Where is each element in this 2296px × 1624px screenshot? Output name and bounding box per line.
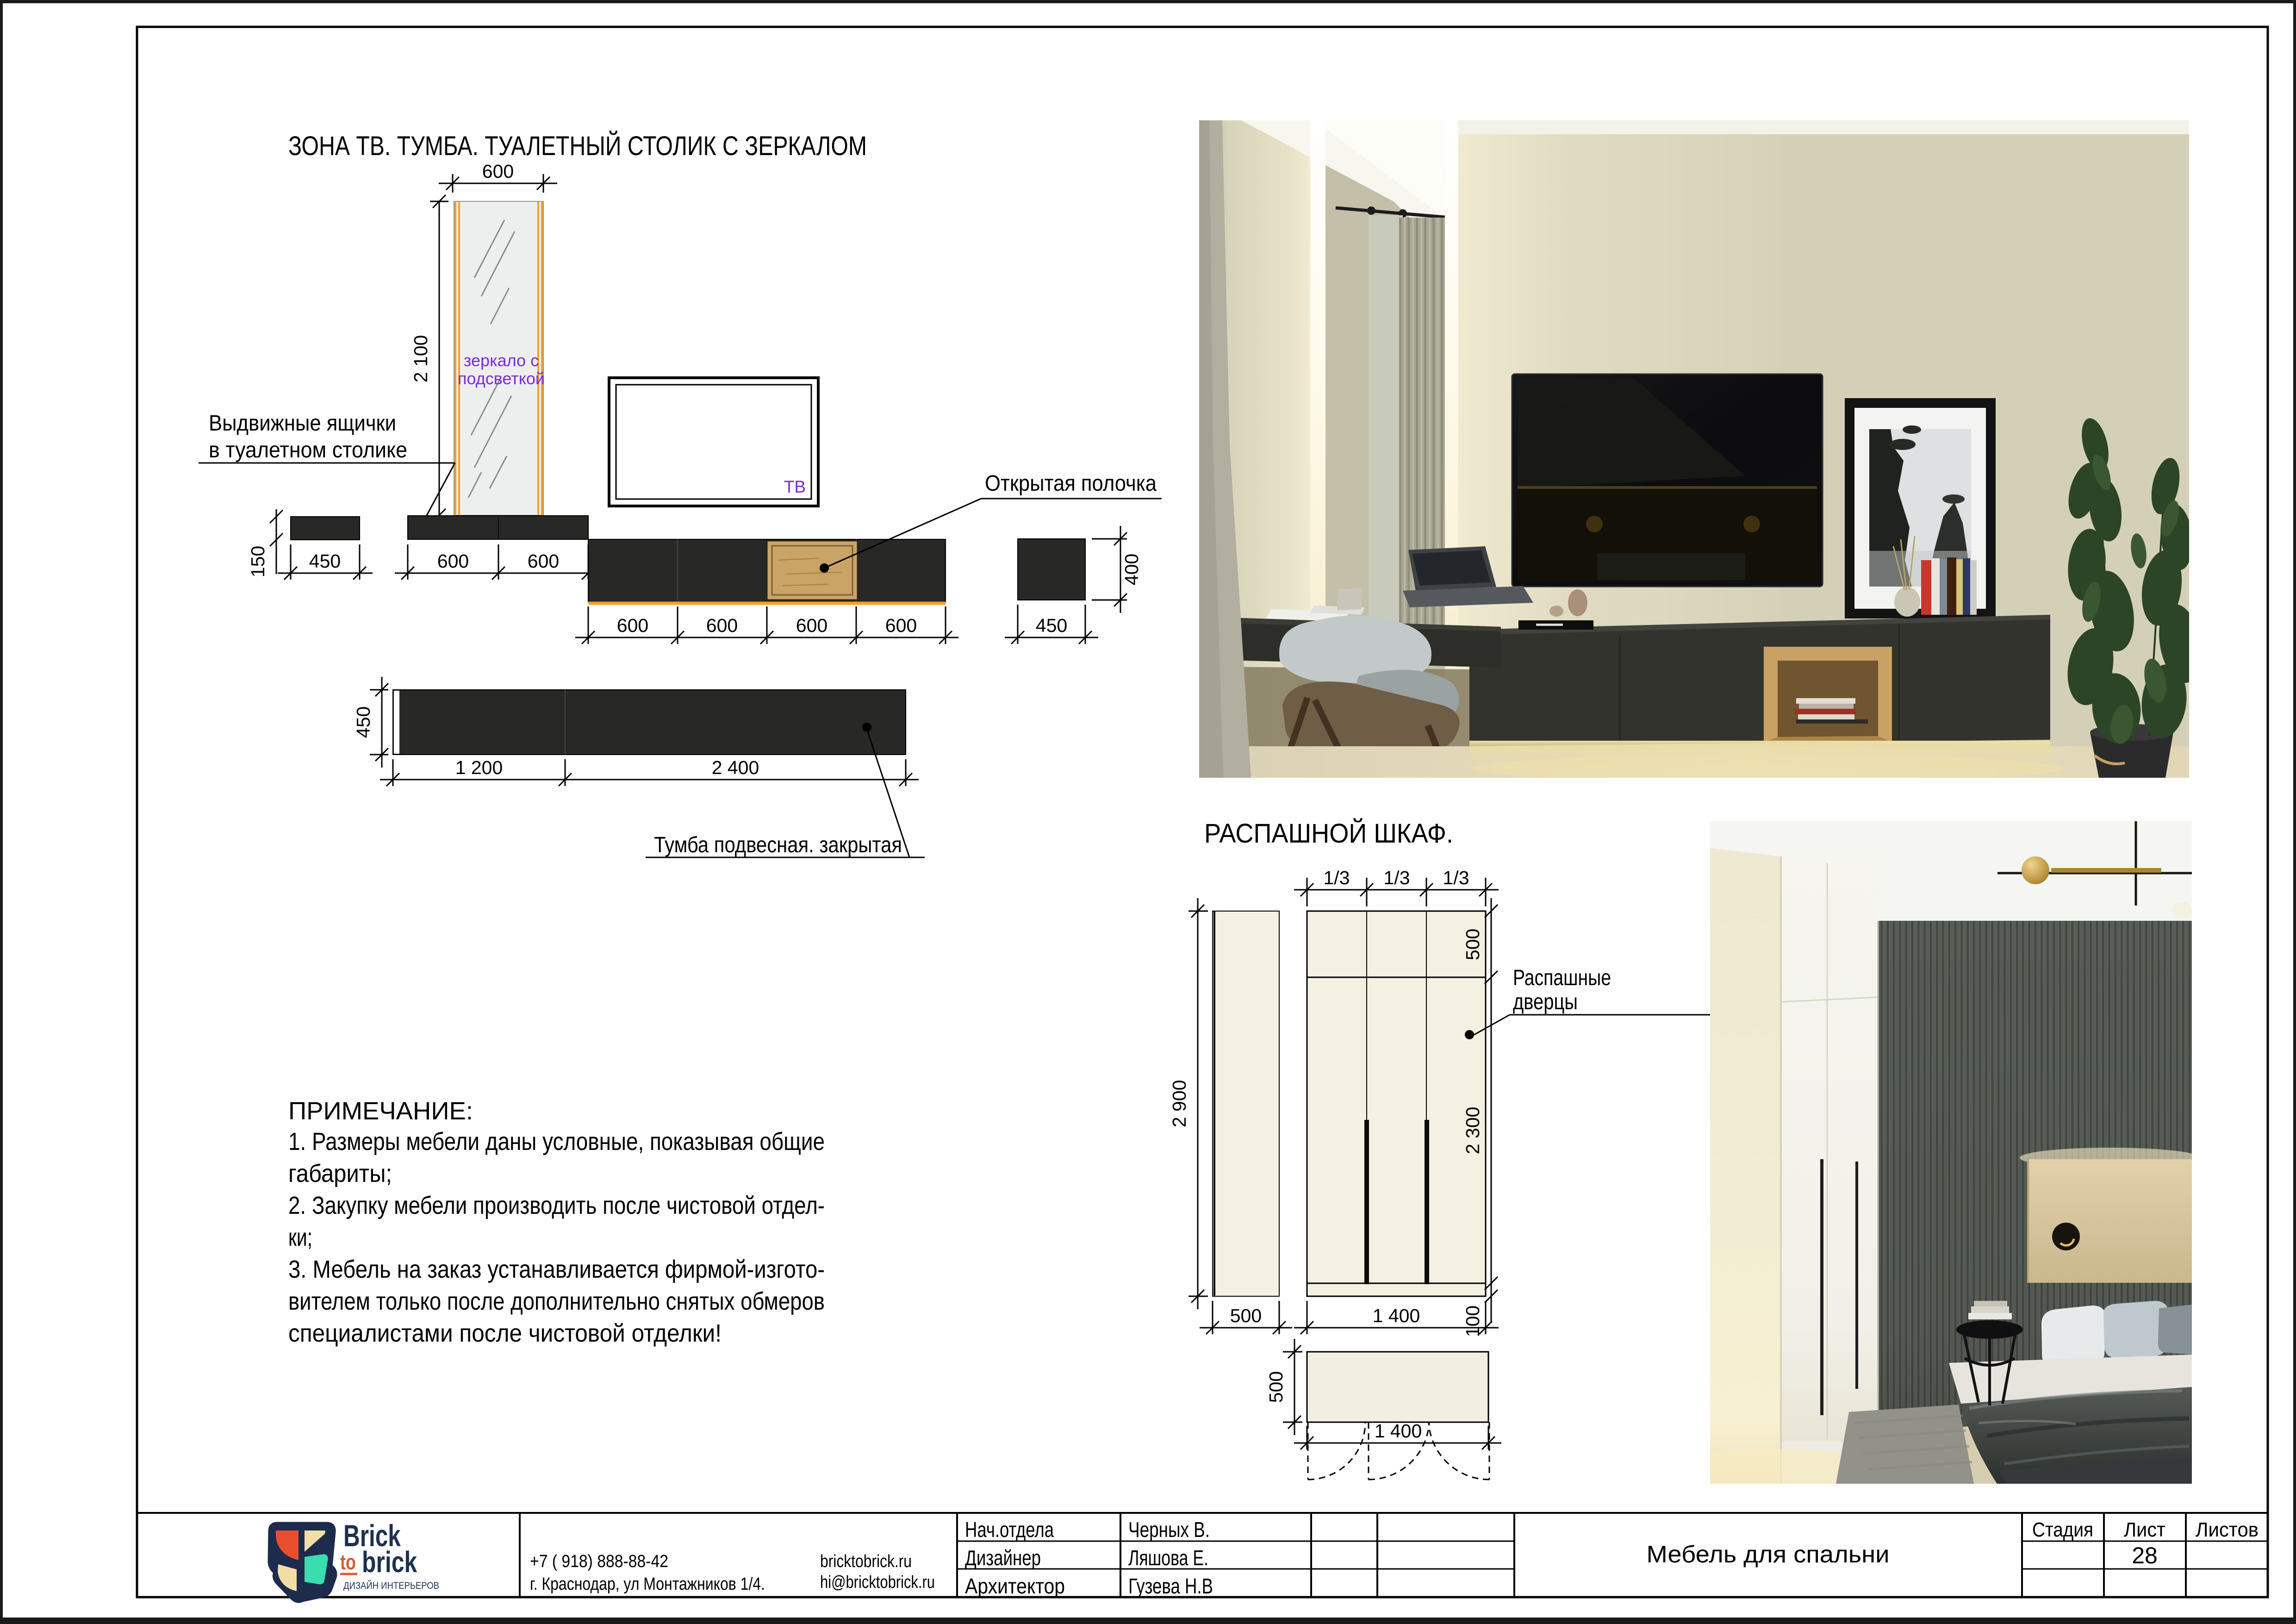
svg-text:Архитектор: Архитектор bbox=[965, 1574, 1065, 1598]
svg-text:600: 600 bbox=[706, 615, 738, 636]
svg-text:Нач.отдела: Нач.отдела bbox=[965, 1518, 1054, 1542]
svg-text:Листов: Листов bbox=[2196, 1518, 2259, 1541]
svg-text:1 400: 1 400 bbox=[1373, 1305, 1420, 1326]
svg-text:Гузева Н.В: Гузева Н.В bbox=[1128, 1574, 1213, 1598]
svg-text:габариты;: габариты; bbox=[288, 1160, 392, 1187]
svg-text:дверцы: дверцы bbox=[1513, 990, 1578, 1014]
svg-text:28: 28 bbox=[2132, 1543, 2158, 1568]
svg-text:brick: brick bbox=[362, 1546, 417, 1579]
svg-text:+7 ( 918) 888-88-42: +7 ( 918) 888-88-42 bbox=[530, 1552, 668, 1571]
svg-text:Открытая полочка: Открытая полочка bbox=[985, 471, 1157, 496]
svg-text:ки;: ки; bbox=[288, 1224, 312, 1251]
svg-text:специалистами после чистовой о: специалистами после чистовой отделки! bbox=[288, 1319, 722, 1347]
svg-text:вителем только после дополните: вителем только после дополнительно сняты… bbox=[288, 1287, 825, 1315]
svg-text:450: 450 bbox=[353, 706, 374, 738]
svg-text:2 100: 2 100 bbox=[410, 335, 431, 383]
svg-text:2 900: 2 900 bbox=[1169, 1080, 1190, 1128]
svg-text:2 300: 2 300 bbox=[1462, 1107, 1483, 1155]
svg-text:600: 600 bbox=[617, 615, 648, 636]
svg-text:600: 600 bbox=[796, 615, 828, 636]
svg-text:3. Мебель на заказ устанавлива: 3. Мебель на заказ устанавливается фирмо… bbox=[288, 1255, 825, 1283]
svg-text:bricktobrick.ru: bricktobrick.ru bbox=[820, 1552, 912, 1571]
svg-text:2 400: 2 400 bbox=[712, 757, 759, 778]
svg-text:Распашные: Распашные bbox=[1513, 966, 1611, 990]
svg-text:1/3: 1/3 bbox=[1443, 867, 1469, 888]
svg-text:450: 450 bbox=[309, 550, 341, 572]
svg-text:Выдвижные ящички: Выдвижные ящички bbox=[209, 411, 396, 436]
svg-text:1. Размеры мебели даны условны: 1. Размеры мебели даны условные, показыв… bbox=[288, 1128, 825, 1156]
svg-text:1/3: 1/3 bbox=[1384, 867, 1410, 888]
svg-text:Стадия: Стадия bbox=[2032, 1518, 2093, 1541]
svg-text:в туалетном столике: в туалетном столике bbox=[209, 438, 407, 462]
svg-text:РАСПАШНОЙ ШКАФ.: РАСПАШНОЙ ШКАФ. bbox=[1204, 818, 1453, 849]
svg-text:зеркало с: зеркало с bbox=[464, 351, 539, 370]
svg-text:подсветкой: подсветкой bbox=[458, 369, 545, 388]
svg-text:Тумба подвесная. закрытая: Тумба подвесная. закрытая bbox=[654, 833, 902, 857]
svg-text:500: 500 bbox=[1265, 1371, 1287, 1403]
svg-text:1 200: 1 200 bbox=[455, 757, 503, 778]
svg-text:г. Краснодар, ул Монтажников: г. Краснодар, ул Монтажников 1/4. bbox=[530, 1574, 765, 1594]
svg-text:2. Закупку мебели производить: 2. Закупку мебели производить после чист… bbox=[288, 1192, 825, 1219]
svg-text:450: 450 bbox=[1036, 615, 1067, 636]
svg-text:1 400: 1 400 bbox=[1375, 1420, 1422, 1442]
svg-text:600: 600 bbox=[528, 550, 559, 572]
svg-text:500: 500 bbox=[1230, 1305, 1262, 1326]
svg-text:600: 600 bbox=[437, 550, 469, 572]
svg-text:600: 600 bbox=[482, 161, 514, 182]
svg-text:Дизайнер: Дизайнер bbox=[965, 1546, 1041, 1570]
svg-text:Черных В.: Черных В. bbox=[1128, 1518, 1210, 1542]
svg-text:ПРИМЕЧАНИЕ:: ПРИМЕЧАНИЕ: bbox=[288, 1097, 473, 1125]
svg-text:hi@bricktobrick.ru: hi@bricktobrick.ru bbox=[820, 1573, 935, 1592]
svg-text:500: 500 bbox=[1462, 929, 1483, 960]
svg-text:400: 400 bbox=[1121, 554, 1142, 585]
svg-text:ДИЗАЙН ИНТЕРЬЕРОВ: ДИЗАЙН ИНТЕРЬЕРОВ bbox=[343, 1580, 439, 1591]
svg-text:to: to bbox=[340, 1550, 356, 1574]
svg-text:1/3: 1/3 bbox=[1324, 867, 1350, 888]
svg-text:Лист: Лист bbox=[2124, 1518, 2165, 1541]
svg-text:Мебель для спальни: Мебель для спальни bbox=[1647, 1541, 1890, 1568]
svg-text:ТВ: ТВ bbox=[784, 477, 806, 496]
svg-text:ЗОНА ТВ. ТУМБА. ТУАЛЕТНЫЙ СТОЛ: ЗОНА ТВ. ТУМБА. ТУАЛЕТНЫЙ СТОЛИК С ЗЕРКА… bbox=[288, 131, 867, 161]
svg-text:150: 150 bbox=[247, 546, 268, 577]
svg-text:600: 600 bbox=[885, 615, 917, 636]
svg-text:Ляшова Е.: Ляшова Е. bbox=[1128, 1546, 1208, 1570]
